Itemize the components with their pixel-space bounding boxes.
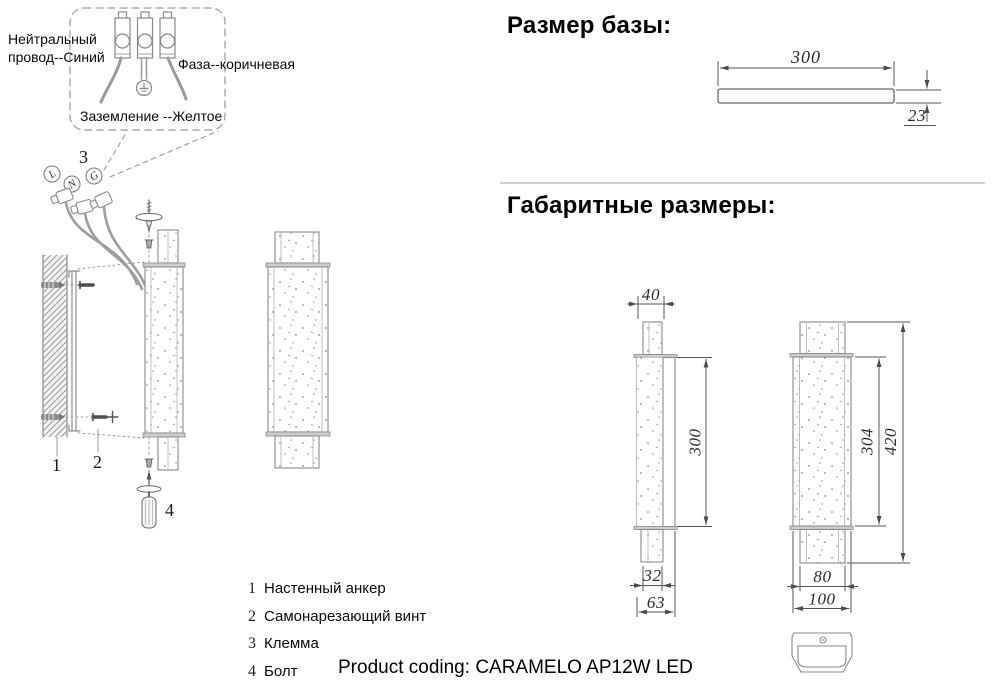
side-body-height-dimension: 300 bbox=[686, 428, 705, 456]
base-width-dimension: 300 bbox=[790, 47, 821, 67]
ground-symbol bbox=[137, 81, 152, 96]
side-depth-dimension: 63 bbox=[647, 593, 665, 612]
product-coding: Product coding: CARAMELO AP12W LED bbox=[338, 657, 693, 679]
base-thickness-dimension: 23 bbox=[908, 106, 926, 125]
overall-front-view: 304 420 80 100 bbox=[787, 322, 910, 613]
legend-item-number: 2 bbox=[248, 608, 264, 626]
side-bottom-width-dimension: 32 bbox=[642, 566, 661, 585]
construction-lines bbox=[66, 200, 149, 476]
installation-diagram: L N G bbox=[41, 8, 330, 528]
lamp-side-view bbox=[143, 230, 185, 470]
callout-number-terminal: 3 bbox=[79, 147, 88, 167]
legend-item-label: Болт bbox=[264, 663, 297, 680]
front-body-height-dimension: 304 bbox=[858, 428, 877, 456]
legend-item-label: Самонарезающий винт bbox=[264, 608, 426, 625]
phase-wire-label: Фаза--коричневая bbox=[178, 55, 295, 73]
callout-leader-line bbox=[110, 131, 218, 177]
callout-number-screw: 2 bbox=[93, 452, 102, 472]
self-tapping-screw bbox=[80, 282, 93, 289]
front-base-width-dimension: 100 bbox=[808, 590, 835, 609]
legend-item-number: 3 bbox=[248, 635, 264, 653]
terminal-block-neutral bbox=[115, 12, 130, 58]
front-tube-width-dimension: 80 bbox=[813, 567, 831, 586]
callout-number-bolt: 4 bbox=[165, 500, 174, 520]
product-coding-label: Product coding: bbox=[338, 657, 470, 678]
callout-number-anchor: 1 bbox=[52, 455, 61, 475]
front-total-height-dimension: 420 bbox=[881, 428, 900, 455]
terminal-block-ground bbox=[138, 12, 153, 58]
product-coding-value: CARAMELO AP12W LED bbox=[475, 657, 693, 678]
legend-item: 1 Настенный анкер bbox=[248, 580, 426, 608]
overall-side-view: 40 300 32 63 bbox=[627, 285, 712, 617]
bolt bbox=[145, 459, 153, 478]
self-tapping-screw bbox=[93, 414, 106, 421]
screwdriver bbox=[137, 476, 161, 528]
legend-item-label: Настенный анкер bbox=[264, 580, 386, 597]
legend-item-label: Клемма bbox=[264, 635, 319, 652]
base-size-drawing: 300 23 bbox=[718, 47, 941, 126]
base-size-heading: Размер базы: bbox=[507, 12, 671, 40]
ground-wire-label: Заземление --Желтое bbox=[80, 107, 222, 125]
terminal-block-phase bbox=[160, 12, 175, 58]
legend-item-number: 4 bbox=[248, 663, 264, 681]
legend-item-number: 1 bbox=[248, 580, 264, 598]
lamp-front-view bbox=[266, 232, 330, 468]
mounting-bracket bbox=[69, 271, 80, 431]
legend-item: 2 Самонарезающий винт bbox=[248, 608, 426, 636]
side-top-width-dimension: 40 bbox=[642, 285, 660, 304]
neutral-wire-label: Нейтральный провод--Синий bbox=[8, 30, 108, 66]
overall-dimensions-heading: Габаритные размеры: bbox=[507, 192, 776, 220]
diagram-canvas: L N G bbox=[0, 0, 1000, 690]
lamp-top-view bbox=[792, 633, 852, 672]
lamp-datasheet-page: L N G bbox=[0, 0, 1000, 690]
callout-leader-line bbox=[104, 133, 126, 170]
screw-axial-view bbox=[107, 412, 118, 423]
